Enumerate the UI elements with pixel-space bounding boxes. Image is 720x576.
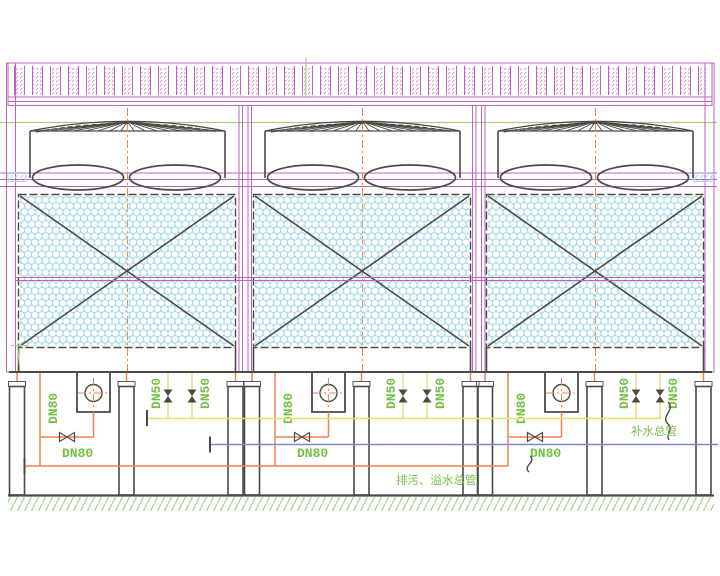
bearing-plate-right: [694, 173, 712, 182]
slab-stripe-gaps: [14, 66, 706, 95]
drain-overflow-main-label: 排污、溢水总管: [396, 473, 477, 487]
drawing-canvas: DN80 DN80 DN50 DN50: [0, 0, 720, 576]
wall-column-left: [7, 63, 16, 372]
cooling-tower-unit-1: [9, 108, 245, 495]
makeup-water-main-label: 补水总管: [631, 424, 677, 438]
ground-hatch: [8, 497, 714, 511]
green-corner-mark: [11, 346, 28, 372]
bearing-plate-left: [8, 173, 26, 182]
roof-slab: [8, 63, 712, 106]
ground: [8, 496, 714, 512]
mid-column-2: [473, 106, 486, 372]
mid-column-1: [239, 106, 252, 372]
wall-column-right: [705, 63, 714, 372]
drain-overflow-main-pipe: [24, 456, 532, 474]
cooling-tower-elevation-drawing: DN80 DN80 DN50 DN50: [0, 0, 720, 576]
cooling-tower-unit-2: [244, 108, 480, 495]
makeup-water-main-pipe: [147, 402, 670, 440]
blue-main-pipe: [210, 437, 718, 453]
